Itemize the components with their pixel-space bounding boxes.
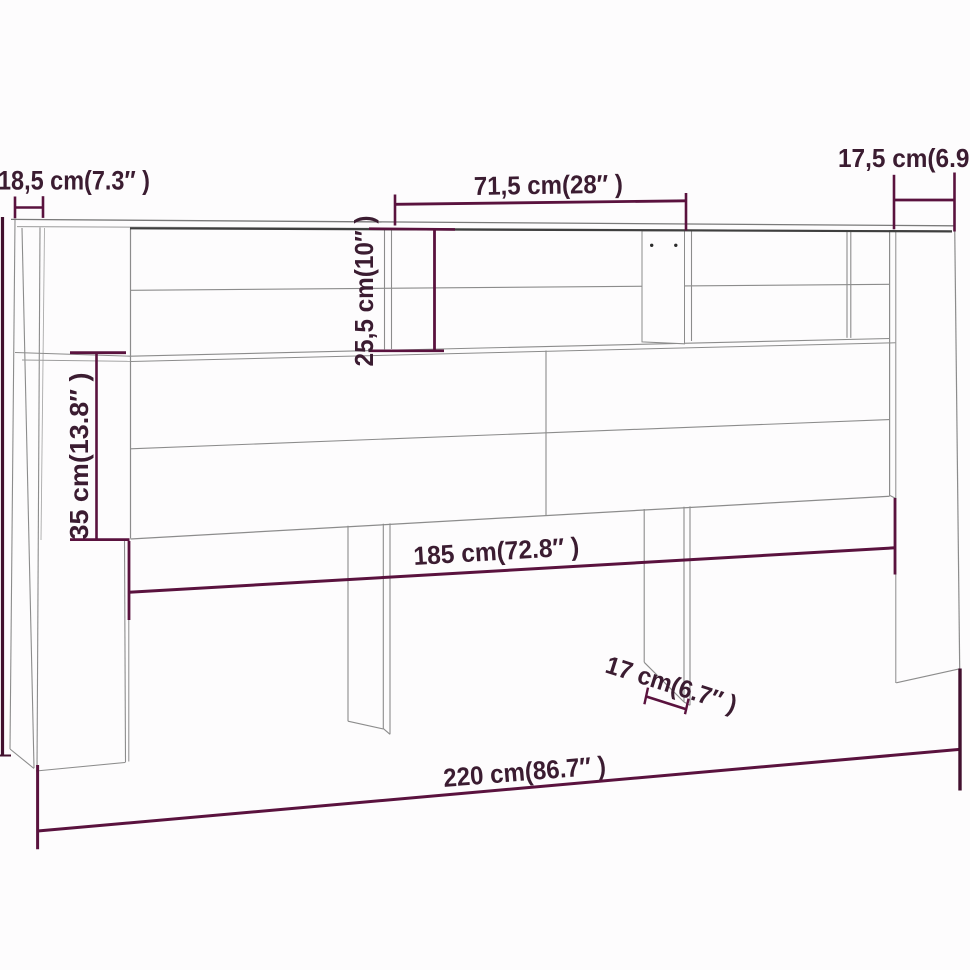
svg-text:35 cm(13.8″ ): 35 cm(13.8″ ): [64, 373, 94, 540]
svg-text:17,5 cm(6.9″ ): 17,5 cm(6.9″ ): [838, 143, 970, 173]
svg-text:71,5 cm(28″ ): 71,5 cm(28″ ): [474, 169, 623, 201]
svg-text:25,5 cm(10″ ): 25,5 cm(10″ ): [349, 216, 379, 367]
svg-text:18,5 cm(7.3″ ): 18,5 cm(7.3″ ): [0, 166, 150, 196]
